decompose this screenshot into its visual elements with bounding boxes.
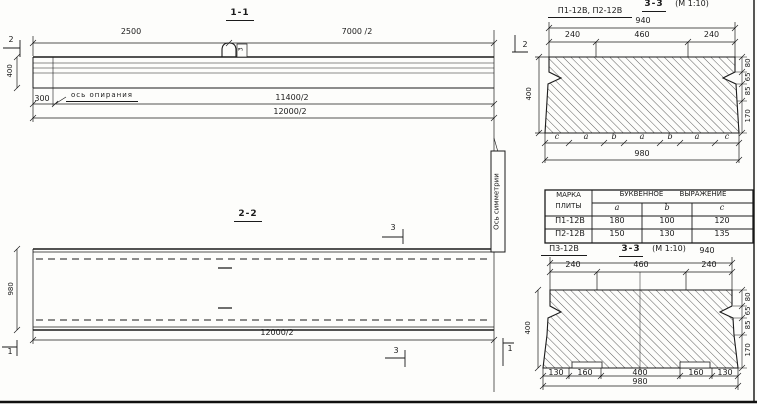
cut-marker-2-left-label: 2 [5, 36, 17, 45]
table-header-mark-line2: ПЛИТЫ [546, 203, 591, 211]
letter-b2: b [662, 133, 678, 142]
dim-400-bottom-section-label: 400 [525, 317, 533, 339]
bearing-axis-label: ось опирания [66, 92, 138, 102]
dim-line-400 [14, 54, 20, 91]
letter-a1: a [578, 133, 594, 142]
cut-marker-3-top-label: 3 [387, 224, 399, 233]
slab-bottom-edge [33, 57, 494, 88]
cut-marker-3-bottom-label: 3 [390, 347, 402, 356]
table-header-expression: БУКВЕННОЕ ВЫРАЖЕНИЕ [594, 191, 752, 199]
drawing-linework [0, 0, 757, 404]
cross-section-profile-bottom [543, 290, 738, 368]
dim-980-plan-label: 980 [8, 278, 16, 300]
table-row2-c: 135 [712, 230, 732, 239]
table-row1-mark: П1-12В [548, 217, 592, 226]
dim-85-bottom-label: 85 [745, 314, 753, 336]
dim-460-label: 460 [628, 31, 656, 40]
dim-400-top-section-label: 400 [526, 83, 534, 105]
dim-12000-label: 12000/2 [270, 108, 310, 117]
dim-240-left-bottom-label: 240 [559, 261, 587, 270]
dim-11400-label: 11400/2 [272, 94, 312, 103]
section-1-1-title: 1-1 [226, 9, 254, 21]
letter-a2: a [634, 133, 650, 142]
plate-mark-label-bottom: П3-12В [541, 245, 587, 256]
dim-240-right-label: 240 [697, 31, 726, 40]
dim-2500-label: 2500 [113, 28, 149, 37]
table-row2-b: 130 [657, 230, 677, 239]
letter-b1: b [606, 133, 622, 142]
plan-inner-edges [33, 249, 494, 330]
section-2-2-title: 2-2 [234, 210, 262, 222]
dim-160-left-label: 160 [571, 369, 599, 378]
dim-240-460-240 [546, 39, 738, 57]
dim-12000-plan-label: 12000/2 [255, 329, 299, 338]
lifting-loop [222, 43, 236, 57]
table-col-b: b [657, 204, 677, 213]
plate-marks-label-top: П1-12В, П2-12В [548, 7, 632, 18]
table-row1-b: 100 [657, 217, 677, 226]
table-row2-a: 150 [607, 230, 627, 239]
dim-980-bottom-label: 980 [626, 378, 654, 387]
dim-980-top-label: 980 [628, 150, 656, 159]
section-3-3-bottom-title: 3-3 [619, 245, 643, 257]
engineering-drawing: 1-1 2500 7000 /2 2 2 3 400 300 ось опира… [0, 0, 757, 404]
section-3-3-bottom-scale: (М 1:10) [645, 245, 693, 254]
dim-130-right-label: 130 [711, 369, 739, 378]
letter-a3: a [689, 133, 705, 142]
dim-160-right-label: 160 [682, 369, 710, 378]
dim-300-label: 300 [32, 95, 52, 104]
section-1-1-linework [3, 35, 528, 122]
loop-tag-label: 3 [239, 39, 246, 59]
dim-7000-label: 7000 /2 [335, 28, 379, 37]
dim-240-right-bottom-label: 240 [695, 261, 723, 270]
letter-c2: c [719, 133, 735, 142]
symmetry-axis-label: Ось симметрии [491, 151, 506, 253]
section-3-3-top-scale: (М 1:10) [668, 0, 716, 9]
dim-170-label: 170 [745, 105, 753, 127]
dim-85-label: 85 [745, 80, 753, 102]
section-3-3-top-linework [535, 22, 747, 163]
table-row2-mark: П2-12В [548, 230, 592, 239]
dim-400-label: 400 [7, 60, 15, 82]
plan-hidden-lines [36, 259, 492, 320]
table-col-a: a [607, 204, 627, 213]
section-3-3-top-title: 3-3 [642, 0, 666, 12]
cut-marker-2-right-label: 2 [519, 41, 531, 50]
table-row1-a: 180 [607, 217, 627, 226]
table-col-c: c [712, 204, 732, 213]
cut-marker-1-right-label: 1 [505, 345, 515, 354]
dim-940-bottom-label: 940 [693, 247, 721, 256]
dim-line-top [30, 36, 497, 56]
dim-460-bottom-label: 460 [627, 261, 655, 270]
plan-center-marks [218, 268, 232, 308]
dim-170-bottom-label: 170 [745, 339, 753, 361]
dim-130-left-label: 130 [542, 369, 570, 378]
table-row1-c: 120 [712, 217, 732, 226]
cross-section-profile-top [545, 57, 739, 133]
cut-marker-1-left-label: 1 [5, 348, 15, 357]
dim-240-left-label: 240 [558, 31, 587, 40]
dim-400-left-bottom [535, 287, 541, 371]
plan-outer-edges [33, 249, 494, 330]
dim-240-460-240-bottom [547, 269, 735, 290]
table-header-mark-line1: МАРКА [546, 192, 591, 200]
dim-940-top-label: 940 [629, 17, 657, 26]
letter-c1: c [549, 133, 565, 142]
